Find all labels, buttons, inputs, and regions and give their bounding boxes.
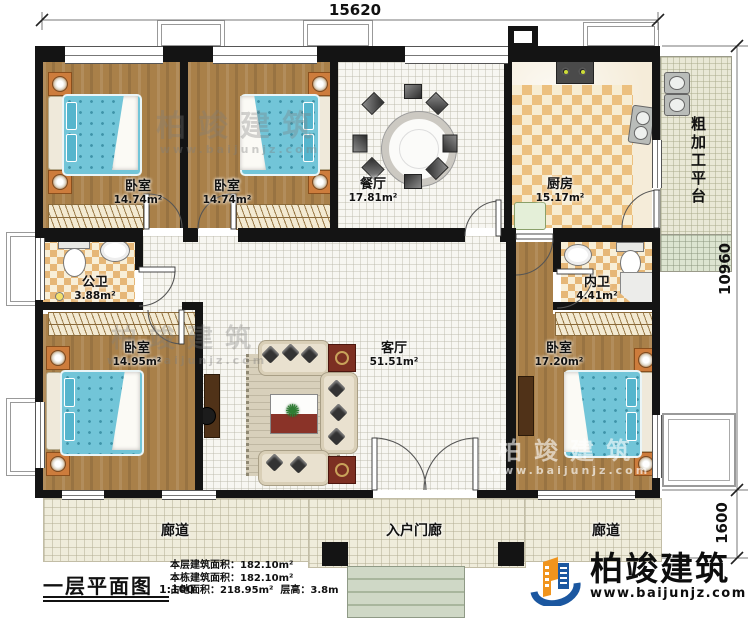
- wall-segment: [553, 228, 660, 242]
- wall-segment: [35, 300, 43, 402]
- side-table-ring: [335, 351, 349, 365]
- wall-segment: [35, 302, 143, 310]
- dimension-porch: 1600: [713, 488, 731, 558]
- window-dining: [405, 46, 508, 64]
- lamp-icon: [52, 174, 68, 190]
- dining-chair: [443, 135, 458, 153]
- wall-segment: [500, 228, 516, 242]
- wall-segment: [238, 228, 465, 242]
- wardrobe: [48, 312, 196, 336]
- window-bedroom-br: [652, 415, 662, 478]
- area-stats: 本层建筑面积：182.10m² 本栋建筑面积：182.10m² 占地面积：218…: [170, 560, 339, 598]
- toilet: [63, 248, 86, 277]
- balcony-outline: [662, 413, 736, 487]
- pillow: [66, 134, 77, 162]
- room-label-corridor-left: 廊道: [135, 520, 215, 540]
- room-label-corridor-right: 廊道: [566, 520, 646, 540]
- title-underline: [43, 600, 169, 602]
- wall-segment: [553, 302, 660, 310]
- window-bedroom-bl: [35, 402, 45, 468]
- stat-row: 占地面积：218.95m² 层高：3.8m: [170, 585, 339, 598]
- wardrobe: [236, 204, 332, 230]
- pillow: [66, 102, 77, 130]
- tick: [731, 40, 743, 52]
- wall-segment: [652, 46, 660, 140]
- wall-segment: [504, 62, 512, 228]
- stat-row: 本栋建筑面积：182.10m²: [170, 573, 339, 586]
- room-label-porch: 入户门廊: [364, 520, 464, 540]
- wall-segment: [195, 302, 203, 490]
- window-bottom-1: [62, 490, 104, 500]
- room-label-platform: 粗加工平台: [688, 116, 709, 206]
- cutting-board: [514, 202, 546, 230]
- dining-chair: [353, 135, 368, 153]
- window-bottom-3: [538, 490, 635, 500]
- platform-sink: [664, 94, 690, 116]
- door-leaf: [516, 234, 553, 239]
- plant-icon: ✺: [285, 403, 300, 421]
- sink-basin-icon: [633, 125, 649, 141]
- wardrobe: [48, 204, 144, 230]
- room-label-bedroom-tl: 卧室 14.74m²: [98, 180, 178, 206]
- wall-segment: [104, 490, 162, 498]
- lamp-icon: [312, 174, 328, 190]
- pillow: [626, 378, 637, 407]
- brand-text: 柏竣建筑 www.baijunjz.com: [590, 552, 747, 601]
- pillow: [303, 102, 314, 130]
- wall-segment: [508, 46, 660, 62]
- nightstand: [46, 346, 70, 370]
- entry-steps: [347, 566, 465, 618]
- brand-name: 柏竣建筑: [590, 552, 747, 586]
- room-label-kitchen: 厨房 15.17m²: [520, 178, 600, 204]
- dimension-top: 15620: [280, 1, 430, 19]
- sink-basin-icon: [635, 110, 651, 126]
- burner-icon: [561, 67, 570, 76]
- wall-segment: [163, 46, 213, 62]
- floor-plan: ✺: [0, 0, 750, 618]
- dresser: [518, 376, 534, 436]
- bathroom-sink: [564, 244, 592, 266]
- lamp-icon: [50, 350, 66, 366]
- brand-block: 柏竣建筑 www.baijunjz.com: [530, 552, 747, 606]
- brand-logo-icon: [530, 552, 582, 606]
- lamp-icon: [50, 456, 66, 472]
- side-table: [328, 456, 356, 484]
- room-label-bedroom-tm: 卧室 14.74m²: [187, 180, 267, 206]
- tv-cabinet: [204, 374, 220, 438]
- room-label-public-bath: 公卫 3.88m²: [55, 276, 135, 302]
- sink-basin-icon: [669, 98, 685, 112]
- wall-segment: [183, 228, 198, 242]
- pillow: [626, 412, 637, 441]
- side-table-ring: [335, 463, 349, 477]
- window-bottom-2: [162, 490, 216, 500]
- wardrobe: [555, 312, 655, 336]
- lamp-icon: [312, 76, 328, 92]
- plan-title: 一层平面图: [43, 574, 153, 598]
- stove: [556, 60, 594, 84]
- room-label-dining: 餐厅 17.81m²: [333, 178, 413, 204]
- wall-segment: [477, 490, 538, 498]
- wall-segment: [35, 490, 62, 498]
- wall-segment: [35, 46, 43, 238]
- wall-segment: [35, 228, 143, 242]
- room-label-bedroom-bl: 卧室 14.95m²: [97, 342, 177, 368]
- lamp-icon: [52, 76, 68, 92]
- burner-icon: [578, 67, 587, 76]
- room-label-bedroom-br: 卧室 17.20m²: [519, 342, 599, 368]
- nightstand: [308, 72, 332, 96]
- room-label-inner-bath: 内卫 4.41m²: [557, 276, 637, 302]
- brand-site: www.baijunjz.com: [590, 586, 747, 601]
- wall-segment: [652, 242, 660, 415]
- pillow: [64, 378, 75, 407]
- bathroom-sink: [100, 239, 130, 262]
- sink-basin-icon: [669, 76, 685, 90]
- wall-segment: [553, 242, 561, 272]
- flue-box-inner: [514, 31, 532, 43]
- window-public-bath: [35, 238, 45, 300]
- wall-segment: [506, 242, 516, 490]
- platform-sink: [664, 72, 690, 94]
- wall-segment: [216, 490, 373, 498]
- wall-segment: [635, 490, 660, 498]
- title-underline: [43, 596, 169, 598]
- window-kitchen-platform: [652, 140, 662, 188]
- floor-bedroom-entry-strip: [516, 242, 553, 314]
- nightstand: [48, 72, 72, 96]
- wall-segment: [317, 46, 405, 62]
- window-bedroom-tm: [213, 46, 317, 64]
- pillow: [303, 134, 314, 162]
- dining-chair: [404, 84, 422, 99]
- side-table: [328, 344, 356, 372]
- pillow: [64, 412, 75, 441]
- room-label-living: 客厅 51.51m²: [354, 342, 434, 368]
- window-bedroom-tl: [65, 46, 163, 64]
- tick: [36, 14, 48, 26]
- stat-row: 本层建筑面积：182.10m²: [170, 560, 339, 573]
- wall-segment: [135, 242, 143, 270]
- door-leaf: [654, 190, 659, 228]
- dimension-right: 10960: [716, 234, 734, 304]
- porch-column-right: [498, 542, 524, 566]
